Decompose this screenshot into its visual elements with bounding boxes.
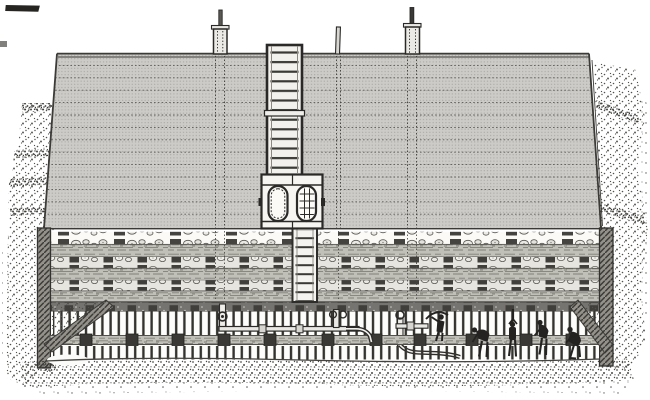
shaft-tower (265, 45, 305, 175)
pipe-flange (407, 322, 414, 330)
cap-sill (50, 302, 600, 312)
oval-port-plain (269, 186, 288, 221)
log-course-3 (50, 291, 600, 302)
shaft-chamber (259, 175, 326, 229)
pipe-flange (296, 325, 303, 333)
left-edge-tick (0, 41, 7, 47)
bottom-ground (20, 359, 634, 395)
stone-course-1 (50, 232, 600, 245)
log-course-1 (50, 244, 600, 257)
pipe-flange (259, 325, 266, 333)
timber-stone-zone (44, 227, 604, 312)
wheel-hub (222, 316, 224, 318)
right-vent-pipe (404, 8, 422, 55)
center-thin-rod (336, 27, 341, 54)
stone-course-2 (50, 257, 600, 268)
engraving-canvas (0, 0, 650, 400)
surface-pipes (212, 8, 422, 55)
shaft-lower-column (293, 229, 318, 303)
chamber-side-lug (259, 198, 263, 206)
chamber-side-lug (321, 198, 325, 206)
left-vent-pipe (212, 10, 230, 54)
oval-port-latticed (297, 186, 316, 221)
tower-coupling-band (265, 111, 305, 117)
stone-course-3 (50, 280, 600, 291)
log-course-2 (50, 268, 600, 280)
engraving-page (0, 0, 650, 400)
printers-dash-mark (5, 3, 41, 14)
